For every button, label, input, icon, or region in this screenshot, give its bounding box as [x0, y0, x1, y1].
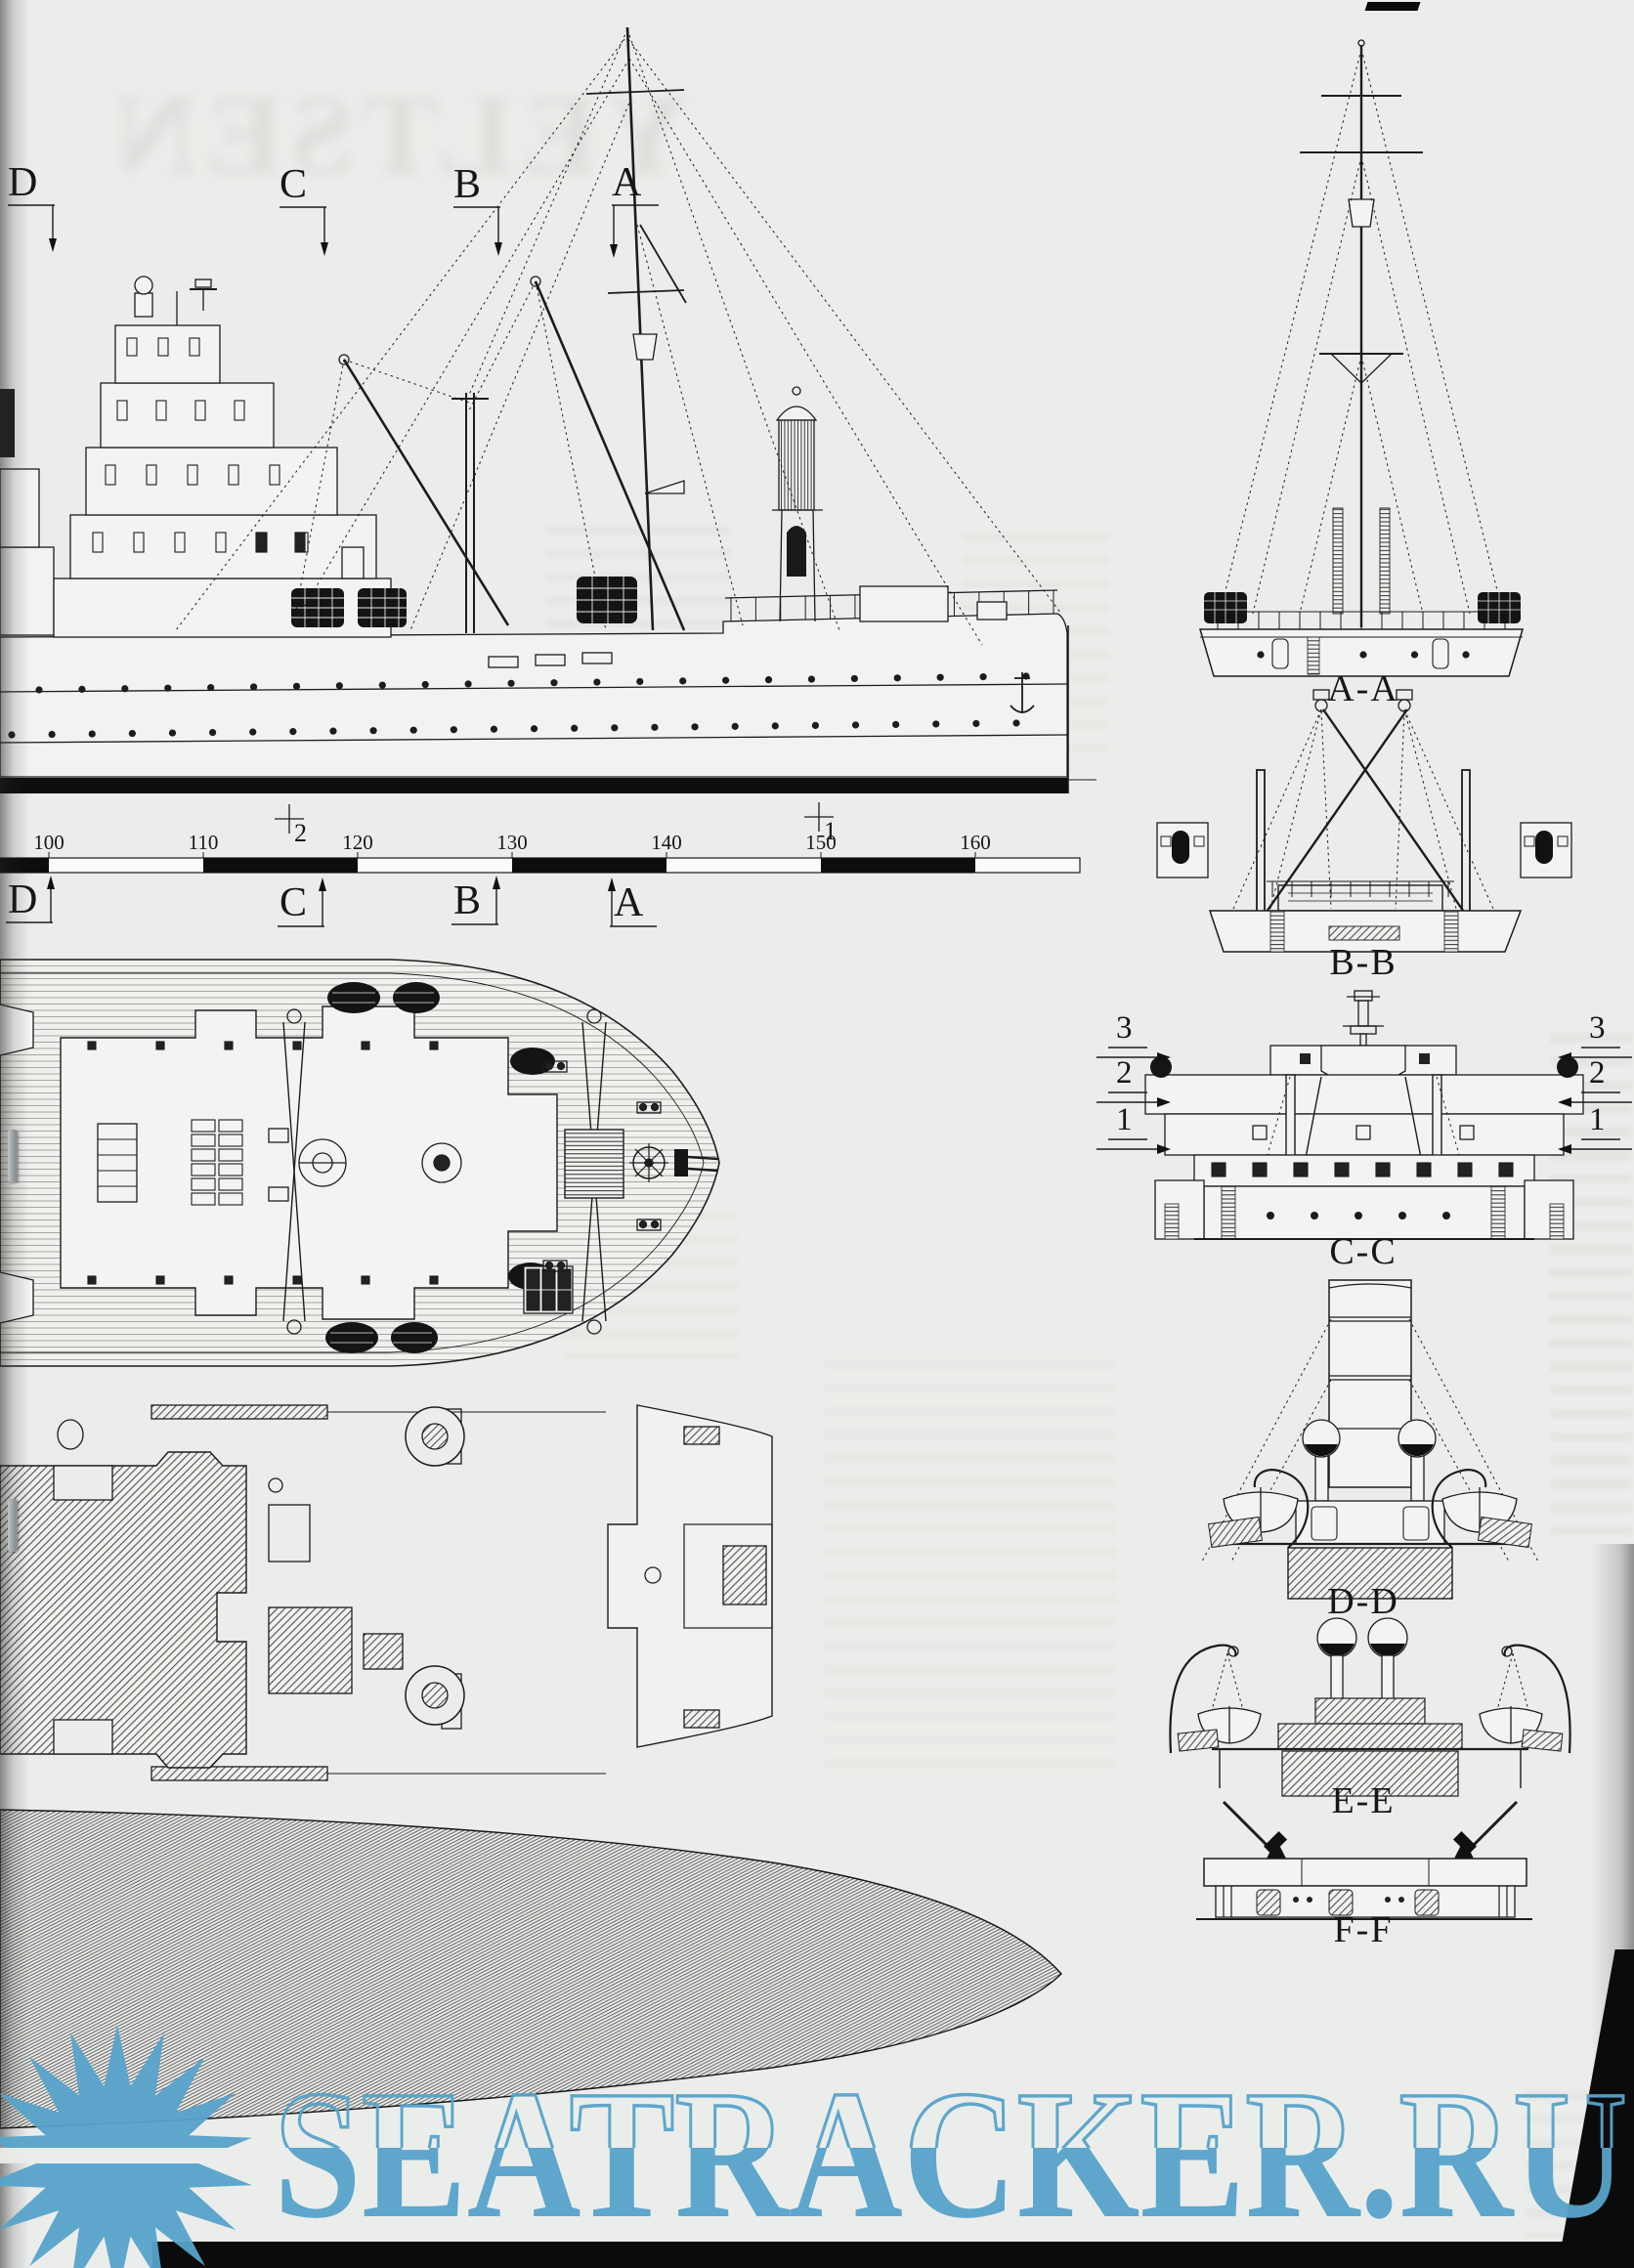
section-marker-b-bottom: B	[453, 880, 481, 921]
deck-level-3-left: 3	[1116, 1012, 1133, 1045]
staple	[8, 1499, 18, 1552]
forecastle-deck-plan	[608, 1405, 772, 1747]
station-cross-markers	[275, 802, 834, 834]
foremast	[586, 27, 686, 630]
station-cross-2: 2	[294, 821, 307, 846]
staple	[8, 1130, 18, 1182]
lifeboat-left	[1170, 1646, 1261, 1753]
boat-deck-plan	[0, 1405, 772, 1780]
cross-section-D-D	[1202, 1280, 1538, 1599]
cross-section-B-B	[1157, 690, 1571, 952]
deck-level-2-left: 2	[1116, 1057, 1133, 1090]
deckhouse-hatched	[0, 1452, 246, 1768]
section-marker-c-bottom: C	[279, 882, 307, 923]
station-ruler	[0, 802, 1080, 926]
aa-gun-left	[1224, 1802, 1287, 1859]
ruler-tick-110: 110	[189, 833, 219, 853]
crows-nest	[633, 334, 657, 360]
bottom-black-bar	[152, 2242, 1634, 2268]
side-elevation-view	[0, 27, 1096, 793]
deck-level-3-right: 3	[1589, 1012, 1606, 1045]
side-cowl-vent	[1157, 823, 1571, 877]
deck-level-1-right: 1	[1589, 1104, 1606, 1136]
cowl-vents	[1317, 1618, 1407, 1700]
lifeboat-right	[1433, 1470, 1532, 1548]
label-section-ff: F-F	[1334, 1911, 1394, 1948]
section-marker-stems-bottom	[6, 876, 657, 926]
six-pane-skylight	[524, 1266, 573, 1313]
label-section-cc: C-C	[1329, 1233, 1397, 1270]
section-marker-stems	[8, 205, 659, 258]
winch-drum	[406, 1407, 464, 1729]
steering-wheel-plan	[629, 1143, 668, 1182]
hull-bottom-plan	[0, 1810, 1061, 2128]
section-marker-c-top: C	[279, 164, 307, 205]
deck-level-1-left: 1	[1116, 1104, 1133, 1136]
cargo-hatch	[565, 1130, 623, 1198]
kingpost	[451, 393, 489, 633]
hatched-casing	[269, 1607, 352, 1693]
label-section-aa: A-A	[1327, 670, 1399, 707]
ruler-tick-120: 120	[342, 833, 373, 853]
top-edge-mark	[1365, 2, 1421, 11]
scanned-blueprint-page: YELTSEN	[0, 0, 1634, 2268]
label-section-dd: D-D	[1327, 1583, 1399, 1620]
aa-gun-right	[1453, 1802, 1517, 1859]
cross-section-E-E	[1170, 1618, 1569, 1796]
superstructure	[54, 277, 391, 637]
ruler-tick-100: 100	[33, 833, 64, 853]
lifeboat-left	[1209, 1470, 1309, 1548]
cross-section-A-A	[1200, 40, 1523, 676]
ruler-tick-130: 130	[496, 833, 528, 853]
label-section-ee: E-E	[1331, 1782, 1395, 1819]
section-marker-b-top: B	[453, 164, 481, 205]
cross-section-C-C	[1096, 991, 1632, 1239]
main-deck-plan	[0, 960, 719, 1366]
boot-topping-bar	[0, 778, 1068, 793]
section-marker-a-bottom: A	[614, 882, 643, 923]
ruler-tick-140: 140	[651, 833, 682, 853]
foredeck-light-tower	[772, 387, 823, 621]
deck-level-2-right: 2	[1589, 1057, 1606, 1090]
ruler-tick-150: 150	[805, 833, 837, 853]
section-marker-a-top: A	[612, 162, 641, 203]
ruler-tick-160: 160	[960, 833, 991, 853]
lifeboat-right	[1480, 1646, 1570, 1753]
label-section-bb: B-B	[1329, 944, 1397, 981]
